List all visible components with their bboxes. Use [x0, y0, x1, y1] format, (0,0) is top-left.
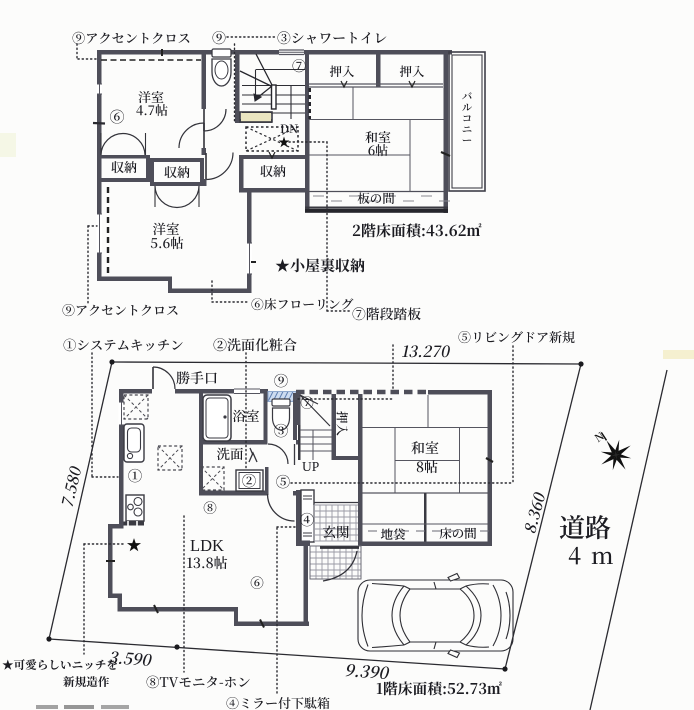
svg-text:LDK: LDK — [190, 536, 224, 555]
svg-text:UP: UP — [302, 459, 319, 474]
